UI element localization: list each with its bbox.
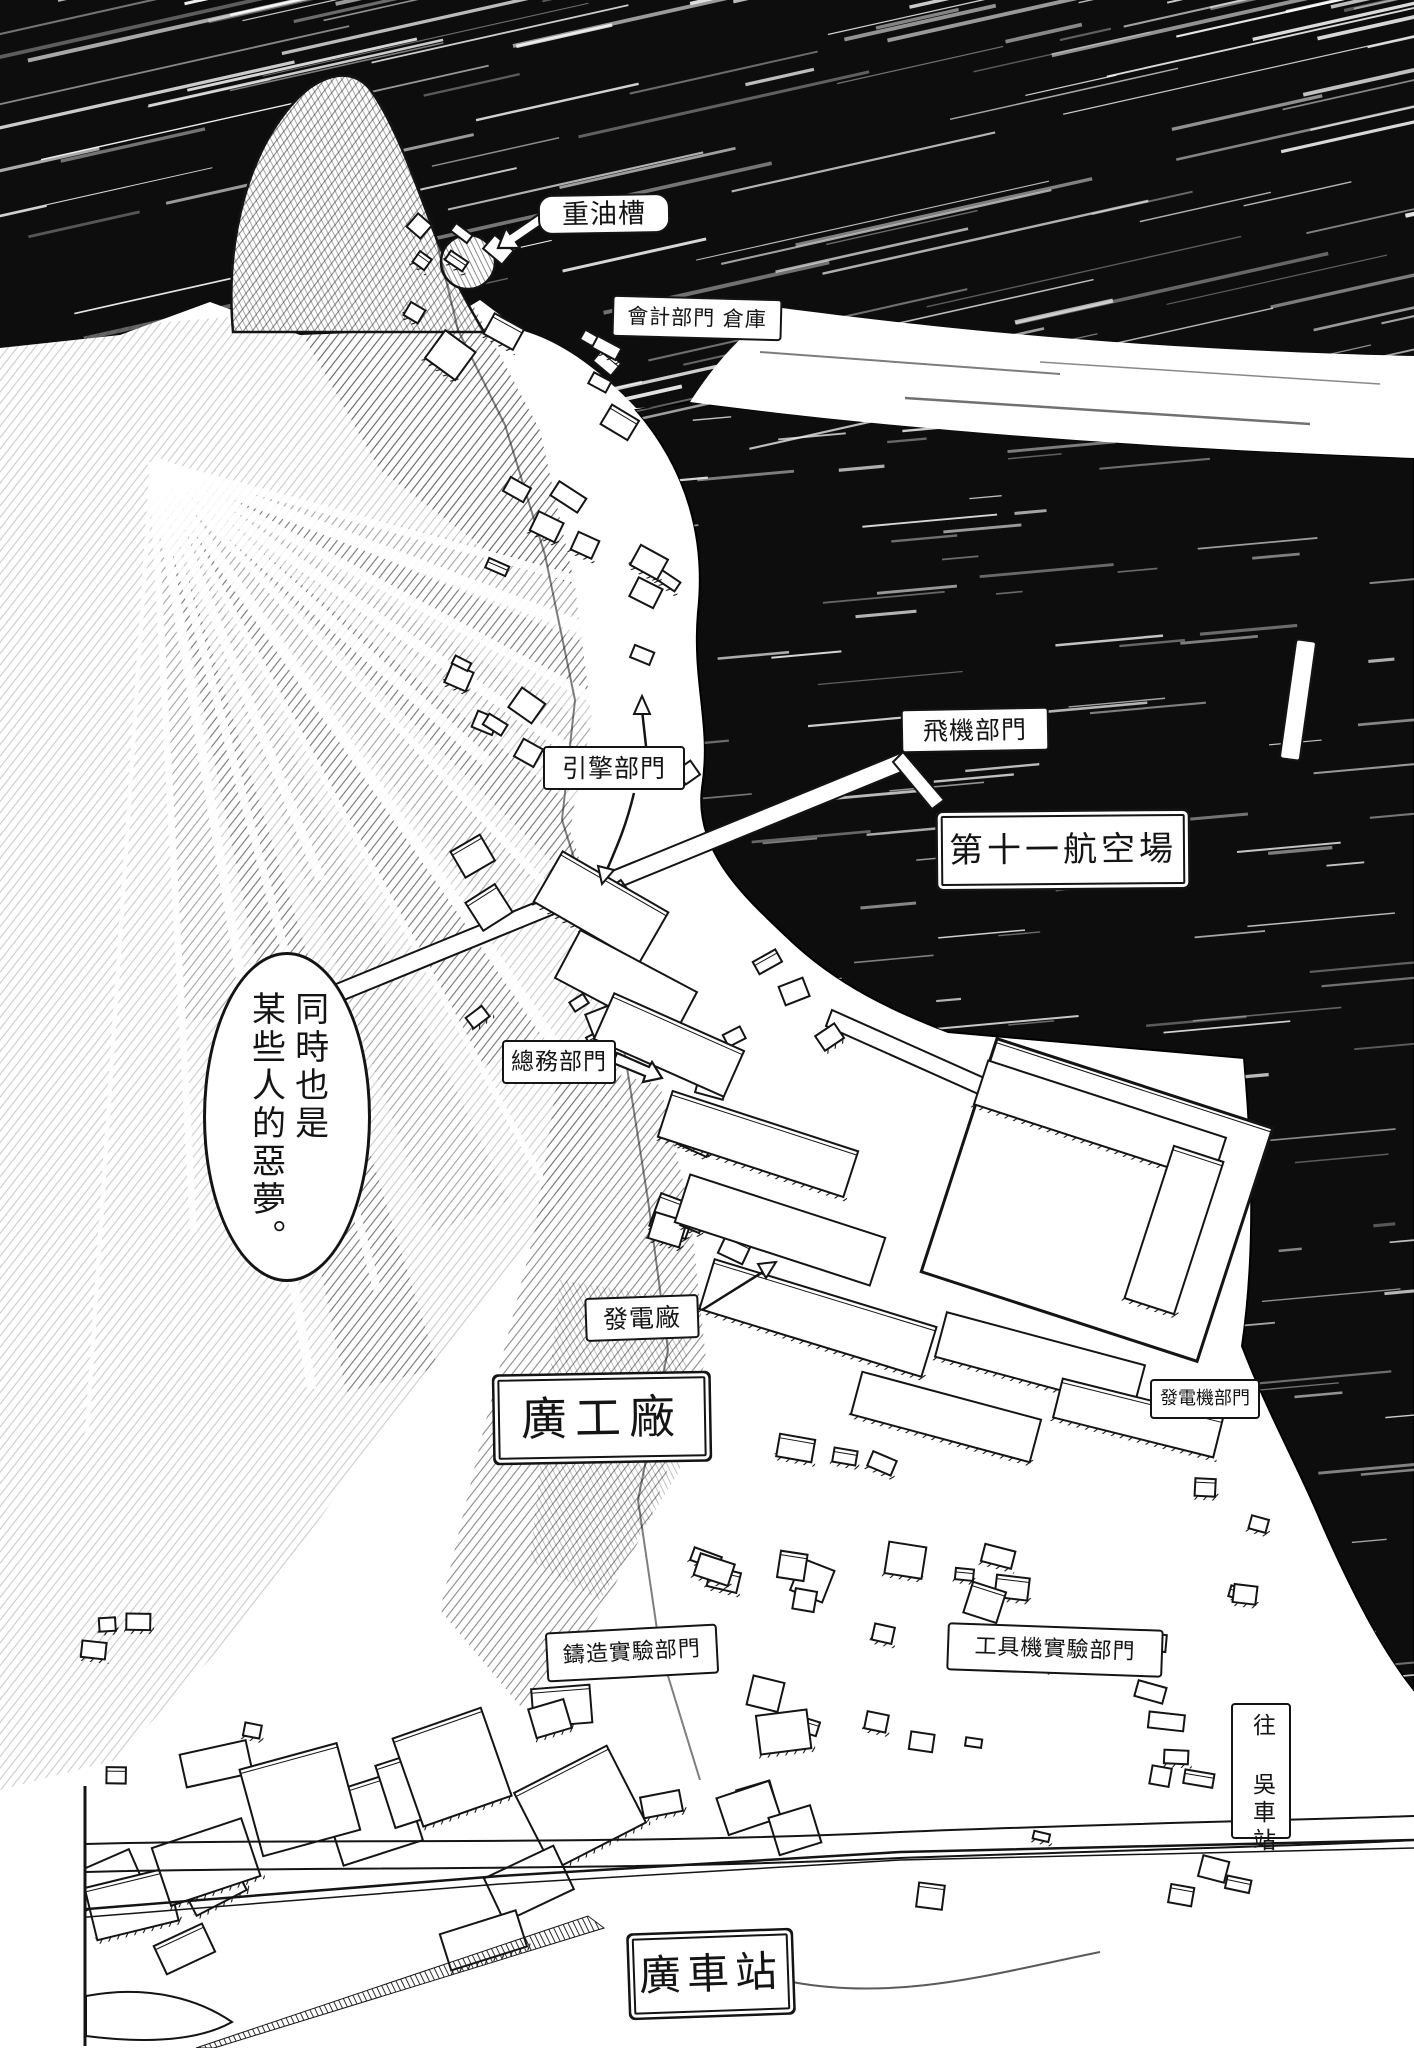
map-label-generator-dept: 發電機部門 [1150, 1379, 1260, 1419]
panel-margin [0, 1786, 85, 2048]
map-label-machine-tool-experiment-dept: 工具機實驗部門 [946, 1622, 1164, 1678]
map-label-fuel-tank: 重油槽 [538, 193, 671, 235]
speech-bubble-text: 同時也是 某些人的惡夢。 [242, 991, 331, 1279]
map-label-general-affairs-dept: 總務部門 [502, 1040, 616, 1084]
manga-page: 同時也是 某些人的惡夢。 重油槽 會計部門 倉庫 引擎部門 飛機部門 第十一航空… [0, 0, 1414, 2048]
bubble-column-left: 某些人的惡夢。 [245, 991, 285, 1279]
map-label-hiro-station: 廣車站 [632, 1933, 791, 2014]
map-label-aircraft-dept: 飛機部門 [901, 707, 1050, 754]
bubble-column-right: 同時也是 [289, 991, 329, 1279]
speech-bubble: 同時也是 某些人的惡夢。 [203, 952, 371, 1282]
map-label-casting-experiment-dept: 鑄造實驗部門 [545, 1624, 719, 1683]
map-label-hiro-factory: 廣工廠 [497, 1376, 706, 1460]
map-label-power-plant: 發電廠 [584, 1294, 699, 1342]
map-label-engine-dept: 引擎部門 [543, 746, 685, 790]
map-label-to-kure-station: 往 吳車站 [1231, 1703, 1291, 1839]
map-label-eleventh-airfield: 第十一航空場 [941, 814, 1186, 886]
map-label-accounting-warehouse: 會計部門 倉庫 [611, 295, 782, 341]
